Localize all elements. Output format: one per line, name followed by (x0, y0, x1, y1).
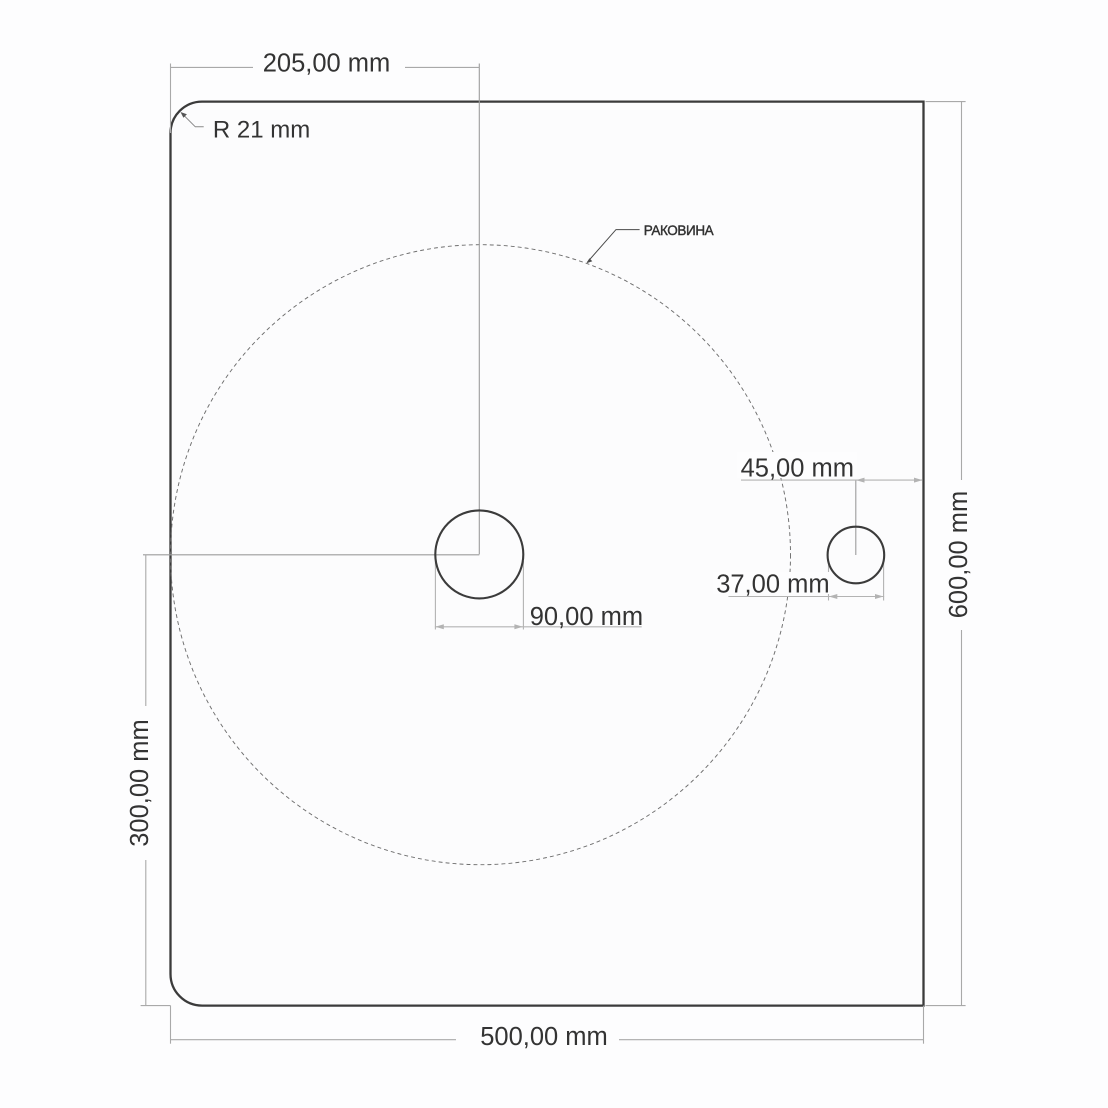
svg-text:37,00 mm: 37,00 mm (716, 571, 829, 599)
svg-text:600,00 mm: 600,00 mm (945, 491, 973, 619)
svg-text:90,00 mm: 90,00 mm (530, 603, 643, 631)
svg-text:45,00 mm: 45,00 mm (741, 455, 854, 483)
svg-text:300,00 mm: 300,00 mm (126, 719, 154, 847)
svg-text:500,00 mm: 500,00 mm (480, 1023, 608, 1051)
svg-text:205,00 mm: 205,00 mm (263, 50, 391, 78)
svg-text:R 21 mm: R 21 mm (213, 117, 310, 144)
svg-text:РАКОВИНА: РАКОВИНА (644, 223, 714, 238)
